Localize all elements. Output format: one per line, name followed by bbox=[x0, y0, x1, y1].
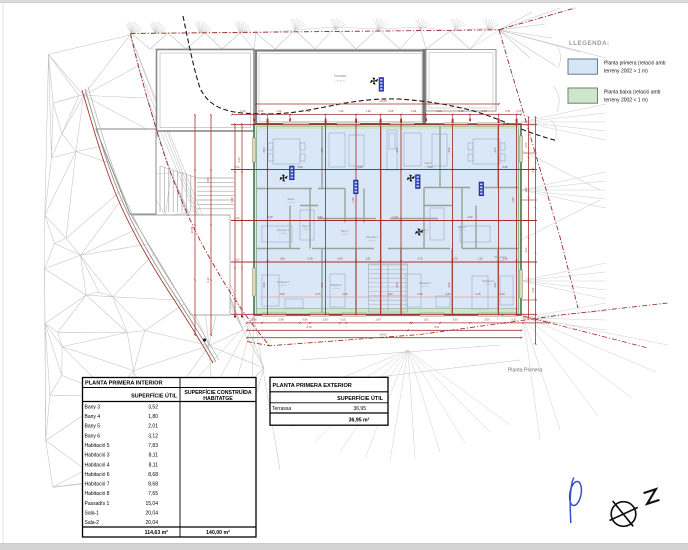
svg-text:3,00: 3,00 bbox=[396, 147, 399, 152]
svg-text:1,80: 1,80 bbox=[148, 414, 158, 420]
svg-text:7,83: 7,83 bbox=[148, 443, 158, 449]
svg-text:s: 8,00 m²: s: 8,00 m² bbox=[279, 284, 287, 287]
svg-text:114,63 m²: 114,63 m² bbox=[145, 530, 169, 536]
svg-text:0,15: 0,15 bbox=[307, 257, 313, 261]
svg-text:SUPERFÍCIE ÚTIL: SUPERFÍCIE ÚTIL bbox=[337, 394, 384, 402]
svg-text:Habitació 4: Habitació 4 bbox=[85, 462, 110, 468]
svg-text:3,00: 3,00 bbox=[263, 147, 266, 152]
svg-text:0,20: 0,20 bbox=[235, 166, 240, 169]
svg-text:3,00: 3,00 bbox=[321, 282, 324, 287]
svg-text:3,00: 3,00 bbox=[525, 247, 528, 252]
svg-text:20,04: 20,04 bbox=[145, 511, 158, 517]
svg-text:Passadís 1: Passadís 1 bbox=[85, 501, 110, 507]
svg-text:2,84: 2,84 bbox=[279, 292, 285, 296]
svg-text:s: 8,00 m²: s: 8,00 m² bbox=[302, 228, 310, 231]
svg-text:Habitació 7: Habitació 7 bbox=[85, 482, 110, 488]
svg-text:14,00: 14,00 bbox=[380, 333, 387, 337]
svg-text:8,68: 8,68 bbox=[148, 472, 158, 478]
svg-text:0,15: 0,15 bbox=[417, 292, 423, 296]
svg-text:0,20: 0,20 bbox=[267, 215, 273, 219]
svg-text:0,15: 0,15 bbox=[437, 109, 443, 113]
svg-text:0,45: 0,45 bbox=[533, 318, 539, 322]
svg-text:PLANTA PRIMERA INTERIOR: PLANTA PRIMERA INTERIOR bbox=[85, 381, 162, 387]
svg-text:Planta primera (relació amb: Planta primera (relació amb bbox=[604, 61, 666, 67]
svg-text:2,01: 2,01 bbox=[148, 424, 158, 430]
svg-text:2,99: 2,99 bbox=[305, 109, 311, 113]
svg-text:s: 8,00 m²: s: 8,00 m² bbox=[458, 229, 466, 232]
svg-text:LLEGENDA:: LLEGENDA: bbox=[569, 40, 610, 47]
svg-text:2,00: 2,00 bbox=[525, 142, 528, 147]
svg-text:HABITATGE: HABITATGE bbox=[203, 396, 233, 402]
svg-text:Sala-2: Sala-2 bbox=[85, 520, 100, 526]
svg-text:8,68: 8,68 bbox=[148, 482, 158, 488]
svg-text:Sala-1: Sala-1 bbox=[288, 198, 296, 201]
svg-text:Habitació 8: Habitació 8 bbox=[494, 256, 507, 259]
svg-text:Habitació 6: Habitació 6 bbox=[85, 472, 110, 478]
svg-text:0,15: 0,15 bbox=[340, 318, 346, 322]
svg-text:3,00: 3,00 bbox=[357, 165, 363, 169]
svg-text:2,90: 2,90 bbox=[375, 318, 381, 322]
svg-text:Bany 3: Bany 3 bbox=[302, 225, 310, 228]
svg-text:2,75: 2,75 bbox=[417, 257, 423, 261]
svg-text:1,99: 1,99 bbox=[279, 257, 285, 261]
svg-text:2,60: 2,60 bbox=[445, 292, 451, 296]
svg-text:9,08: 9,08 bbox=[230, 197, 234, 203]
svg-text:8,01: 8,01 bbox=[434, 325, 440, 329]
svg-text:2,62: 2,62 bbox=[317, 215, 323, 219]
svg-text:3,00: 3,00 bbox=[263, 282, 266, 287]
svg-text:SUPERFÍCIE CONSTRUÏDA: SUPERFÍCIE CONSTRUÏDA bbox=[184, 388, 251, 396]
svg-text:3,00: 3,00 bbox=[448, 282, 451, 287]
svg-text:Habitació 3: Habitació 3 bbox=[330, 284, 343, 287]
svg-text:s: 8,00 m²: s: 8,00 m² bbox=[424, 165, 432, 168]
svg-text:0,15: 0,15 bbox=[315, 292, 321, 296]
svg-text:6,25: 6,25 bbox=[459, 109, 465, 113]
svg-text:Habitació 8: Habitació 8 bbox=[85, 491, 110, 497]
svg-text:2,20: 2,20 bbox=[387, 292, 393, 296]
svg-text:4,80: 4,80 bbox=[206, 177, 210, 183]
svg-text:Terrassa: Terrassa bbox=[334, 74, 346, 78]
svg-text:SUPERFÍCIE ÚTIL: SUPERFÍCIE ÚTIL bbox=[131, 392, 178, 400]
svg-text:3,00: 3,00 bbox=[448, 147, 451, 152]
svg-text:PLANTA PRIMERA EXTERIOR: PLANTA PRIMERA EXTERIOR bbox=[273, 383, 352, 389]
svg-text:Bany 6: Bany 6 bbox=[458, 226, 466, 229]
svg-text:1,15: 1,15 bbox=[477, 257, 483, 261]
svg-text:s: 8,00 m²: s: 8,00 m² bbox=[287, 201, 295, 204]
svg-text:Passadís 2: Passadís 2 bbox=[277, 229, 289, 232]
svg-text:0,15: 0,15 bbox=[482, 109, 488, 113]
svg-text:s: 8,00 m²: s: 8,00 m² bbox=[420, 232, 428, 235]
svg-text:0,15: 0,15 bbox=[240, 109, 246, 113]
svg-text:Habitació 5: Habitació 5 bbox=[277, 281, 290, 284]
svg-text:3,00: 3,00 bbox=[452, 318, 458, 322]
svg-text:Planta Primera: Planta Primera bbox=[508, 368, 542, 374]
svg-text:3,00: 3,00 bbox=[484, 318, 490, 322]
svg-text:3,10: 3,10 bbox=[206, 277, 210, 283]
svg-text:0,20: 0,20 bbox=[235, 259, 240, 262]
svg-text:0,31: 0,31 bbox=[511, 318, 517, 322]
svg-text:1,92: 1,92 bbox=[423, 318, 429, 322]
svg-text:0,45: 0,45 bbox=[388, 109, 394, 113]
svg-text:3,92: 3,92 bbox=[532, 287, 535, 292]
svg-text:s: 8,00 m²: s: 8,00 m² bbox=[368, 239, 376, 242]
svg-text:0,20: 0,20 bbox=[238, 157, 241, 162]
svg-text:Sala-1: Sala-1 bbox=[85, 511, 100, 517]
svg-text:terreny 2002 < 1 m): terreny 2002 < 1 m) bbox=[604, 98, 648, 104]
svg-text:3,00: 3,00 bbox=[494, 282, 497, 287]
svg-text:6,35: 6,35 bbox=[258, 109, 264, 113]
svg-text:3,00: 3,00 bbox=[321, 147, 324, 152]
svg-text:s: 8,00 m²: s: 8,00 m² bbox=[496, 259, 504, 262]
svg-text:s: 8,00 m²: s: 8,00 m² bbox=[332, 287, 340, 290]
svg-text:Habitació 5: Habitació 5 bbox=[85, 443, 110, 449]
svg-text:Sala-2: Sala-2 bbox=[425, 162, 433, 165]
svg-text:1,90: 1,90 bbox=[276, 109, 282, 113]
svg-text:2,99: 2,99 bbox=[411, 109, 417, 113]
svg-text:8,11: 8,11 bbox=[149, 453, 159, 459]
svg-text:Habitació 6: Habitació 6 bbox=[482, 280, 495, 283]
svg-text:Bany 4: Bany 4 bbox=[341, 230, 349, 233]
svg-text:1,55: 1,55 bbox=[322, 318, 328, 322]
svg-text:1,59: 1,59 bbox=[525, 187, 528, 192]
svg-text:15,04: 15,04 bbox=[145, 501, 158, 507]
svg-text:Bany 6: Bany 6 bbox=[85, 433, 101, 439]
svg-text:14,00: 14,00 bbox=[379, 99, 387, 103]
svg-text:5,90: 5,90 bbox=[297, 165, 303, 169]
svg-text:1,59: 1,59 bbox=[512, 197, 515, 202]
svg-text:s: 8,00 m²: s: 8,00 m² bbox=[279, 232, 287, 235]
svg-text:Passadís 1: Passadís 1 bbox=[366, 236, 378, 239]
svg-text:1,90: 1,90 bbox=[366, 109, 372, 113]
svg-text:10,56: 10,56 bbox=[190, 226, 194, 233]
svg-text:s: 8,00 m²: s: 8,00 m² bbox=[421, 285, 429, 288]
svg-text:1,51: 1,51 bbox=[365, 257, 371, 261]
svg-text:s: 8,00 m²: s: 8,00 m² bbox=[484, 283, 492, 286]
svg-text:2,60: 2,60 bbox=[499, 292, 505, 296]
svg-text:0,96: 0,96 bbox=[302, 318, 308, 322]
svg-text:8,11: 8,11 bbox=[149, 462, 159, 468]
svg-text:3,00: 3,00 bbox=[494, 147, 497, 152]
svg-text:s: 8,00 m²: s: 8,00 m² bbox=[341, 233, 349, 236]
svg-text:140,00 m²: 140,00 m² bbox=[206, 530, 230, 536]
svg-text:3,52: 3,52 bbox=[148, 404, 158, 410]
svg-text:s: 36,95 m²: s: 36,95 m² bbox=[335, 80, 346, 83]
svg-text:5,90: 5,90 bbox=[502, 165, 508, 169]
svg-text:0,98: 0,98 bbox=[251, 318, 257, 322]
svg-text:1,40: 1,40 bbox=[338, 109, 344, 113]
svg-text:2,62: 2,62 bbox=[467, 215, 473, 219]
svg-text:6,79: 6,79 bbox=[306, 325, 312, 329]
svg-text:0,15: 0,15 bbox=[475, 292, 481, 296]
svg-text:1,10: 1,10 bbox=[392, 215, 398, 219]
svg-text:2,98: 2,98 bbox=[278, 318, 284, 322]
svg-text:2,55: 2,55 bbox=[505, 109, 511, 113]
svg-text:Bany 3: Bany 3 bbox=[85, 404, 101, 410]
svg-text:2,03: 2,03 bbox=[342, 292, 348, 296]
svg-text:Planta baixa (relació amb: Planta baixa (relació amb bbox=[604, 90, 661, 96]
svg-text:terreny 2002 > 1 m): terreny 2002 > 1 m) bbox=[604, 69, 648, 75]
svg-text:2,84: 2,84 bbox=[337, 257, 343, 261]
svg-text:Habitació 3: Habitació 3 bbox=[85, 453, 110, 459]
svg-text:Habitació 4: Habitació 4 bbox=[419, 282, 432, 285]
svg-text:1,30: 1,30 bbox=[352, 197, 355, 202]
svg-text:7,65: 7,65 bbox=[148, 491, 158, 497]
svg-text:3,05: 3,05 bbox=[396, 282, 399, 287]
svg-text:3,12: 3,12 bbox=[148, 433, 158, 439]
svg-text:0,15: 0,15 bbox=[516, 109, 522, 113]
svg-text:36,95: 36,95 bbox=[353, 406, 366, 412]
svg-text:Bany 5: Bany 5 bbox=[85, 424, 101, 430]
svg-text:0,20: 0,20 bbox=[235, 217, 240, 220]
svg-text:Terrassa: Terrassa bbox=[272, 406, 291, 412]
svg-text:36,95 m²: 36,95 m² bbox=[349, 417, 370, 423]
svg-text:20,04: 20,04 bbox=[145, 520, 158, 526]
svg-text:Bany 4: Bany 4 bbox=[85, 414, 101, 420]
